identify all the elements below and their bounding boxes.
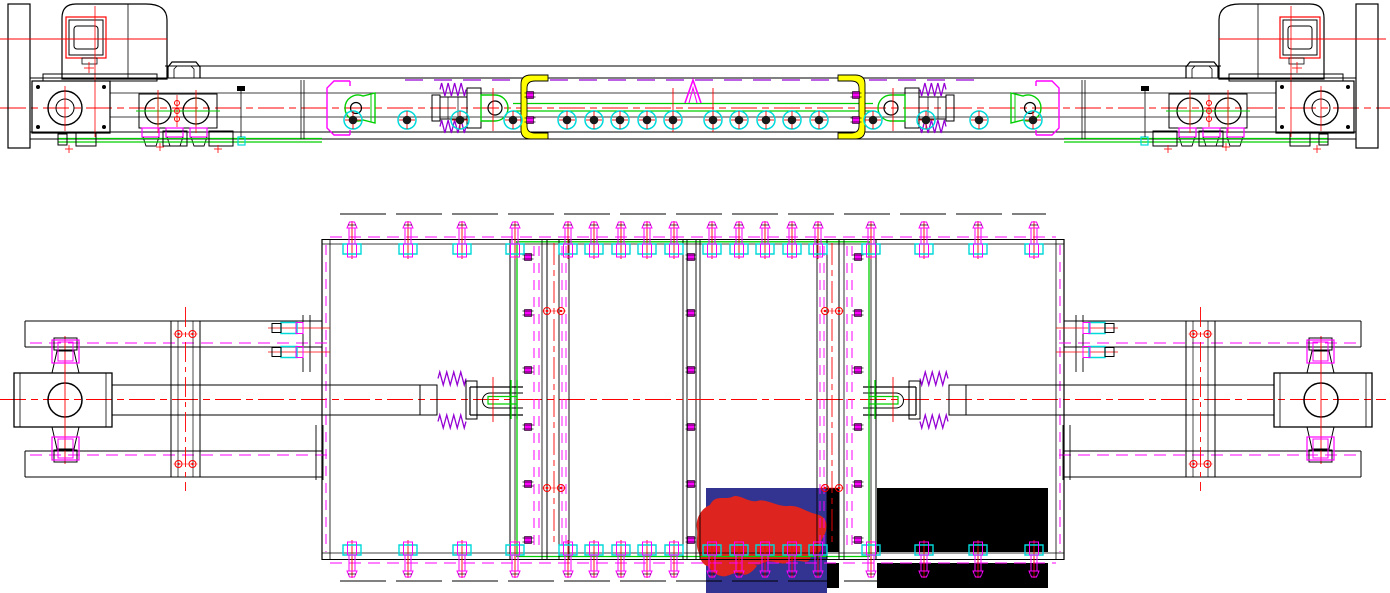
plan-view-shared [0, 214, 1386, 581]
cad-drawing-stage [0, 0, 1390, 593]
cad-drawing [0, 0, 1390, 593]
